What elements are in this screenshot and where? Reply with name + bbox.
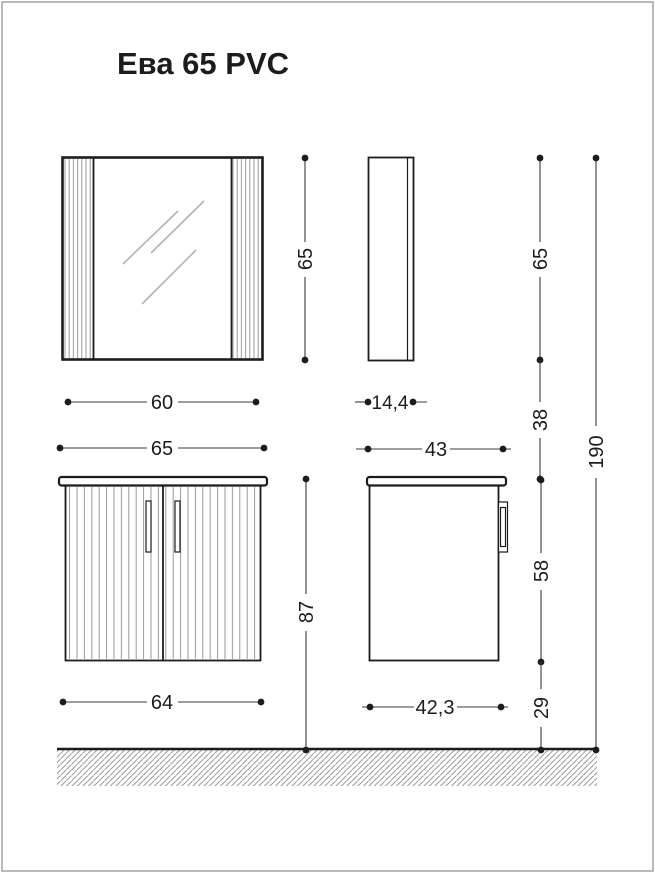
dim-gap-mirror-cabinet: 38 bbox=[530, 360, 552, 482]
dim-cabinet-height: 87 bbox=[296, 476, 318, 754]
drawing-canvas: Ева 65 PVC bbox=[0, 0, 655, 873]
technical-drawing-page: Ева 65 PVC bbox=[0, 0, 655, 873]
dim-label-cabinet-depth: 43 bbox=[425, 439, 447, 461]
dim-label-body-depth: 42,3 bbox=[416, 697, 455, 719]
dim-mirror-depth: 14,4 bbox=[355, 393, 427, 414]
dim-body-height: 58 bbox=[531, 477, 553, 666]
dim-mirror-height: 65 bbox=[295, 155, 317, 364]
dim-label-floor-clearance: 29 bbox=[531, 697, 553, 719]
dim-label-mirror-height: 65 bbox=[295, 248, 317, 270]
cabinet-side-countertop bbox=[367, 477, 506, 486]
dim-total-height: 190 bbox=[586, 155, 608, 754]
page-border bbox=[2, 2, 653, 871]
cabinet-front-view bbox=[59, 477, 267, 661]
dim-label-cabinet-height: 87 bbox=[296, 601, 318, 623]
cabinet-left-handle bbox=[146, 501, 151, 552]
mirror-front-view bbox=[63, 158, 263, 360]
cabinet-side-view bbox=[367, 477, 508, 661]
dim-floor-clearance: 29 bbox=[531, 662, 553, 753]
cabinet-right-handle bbox=[175, 501, 180, 552]
dim-label-mirror-depth: 14,4 bbox=[372, 393, 409, 414]
floor-hatch bbox=[57, 750, 597, 786]
dim-mirror-width: 60 bbox=[65, 392, 260, 414]
dim-cabinet-width: 65 bbox=[57, 438, 268, 460]
floor bbox=[57, 749, 597, 786]
dim-label-body-width: 64 bbox=[151, 692, 173, 714]
dim-label-total-height: 190 bbox=[586, 435, 608, 468]
dim-body-width: 64 bbox=[60, 692, 265, 714]
dim-cabinet-depth: 43 bbox=[356, 439, 511, 461]
dim-label-gap: 38 bbox=[530, 409, 552, 431]
dim-label-wall-mirror-height: 65 bbox=[530, 248, 552, 270]
cabinet-side-handle bbox=[499, 502, 508, 552]
dim-label-body-height: 58 bbox=[531, 560, 553, 582]
mirror-side-body bbox=[369, 158, 414, 361]
dim-body-depth: 42,3 bbox=[362, 697, 508, 719]
dim-label-cabinet-width: 65 bbox=[151, 438, 173, 460]
cabinet-side-body bbox=[370, 486, 499, 661]
dim-wall-mirror-height: 65 bbox=[530, 155, 552, 364]
dim-label-mirror-width: 60 bbox=[151, 392, 173, 414]
page-title: Ева 65 PVC bbox=[117, 46, 289, 81]
cabinet-countertop bbox=[59, 477, 267, 486]
mirror-left-fluted-panel bbox=[64, 159, 93, 358]
mirror-side-view bbox=[369, 158, 414, 361]
mirror-right-fluted-panel bbox=[232, 159, 261, 358]
